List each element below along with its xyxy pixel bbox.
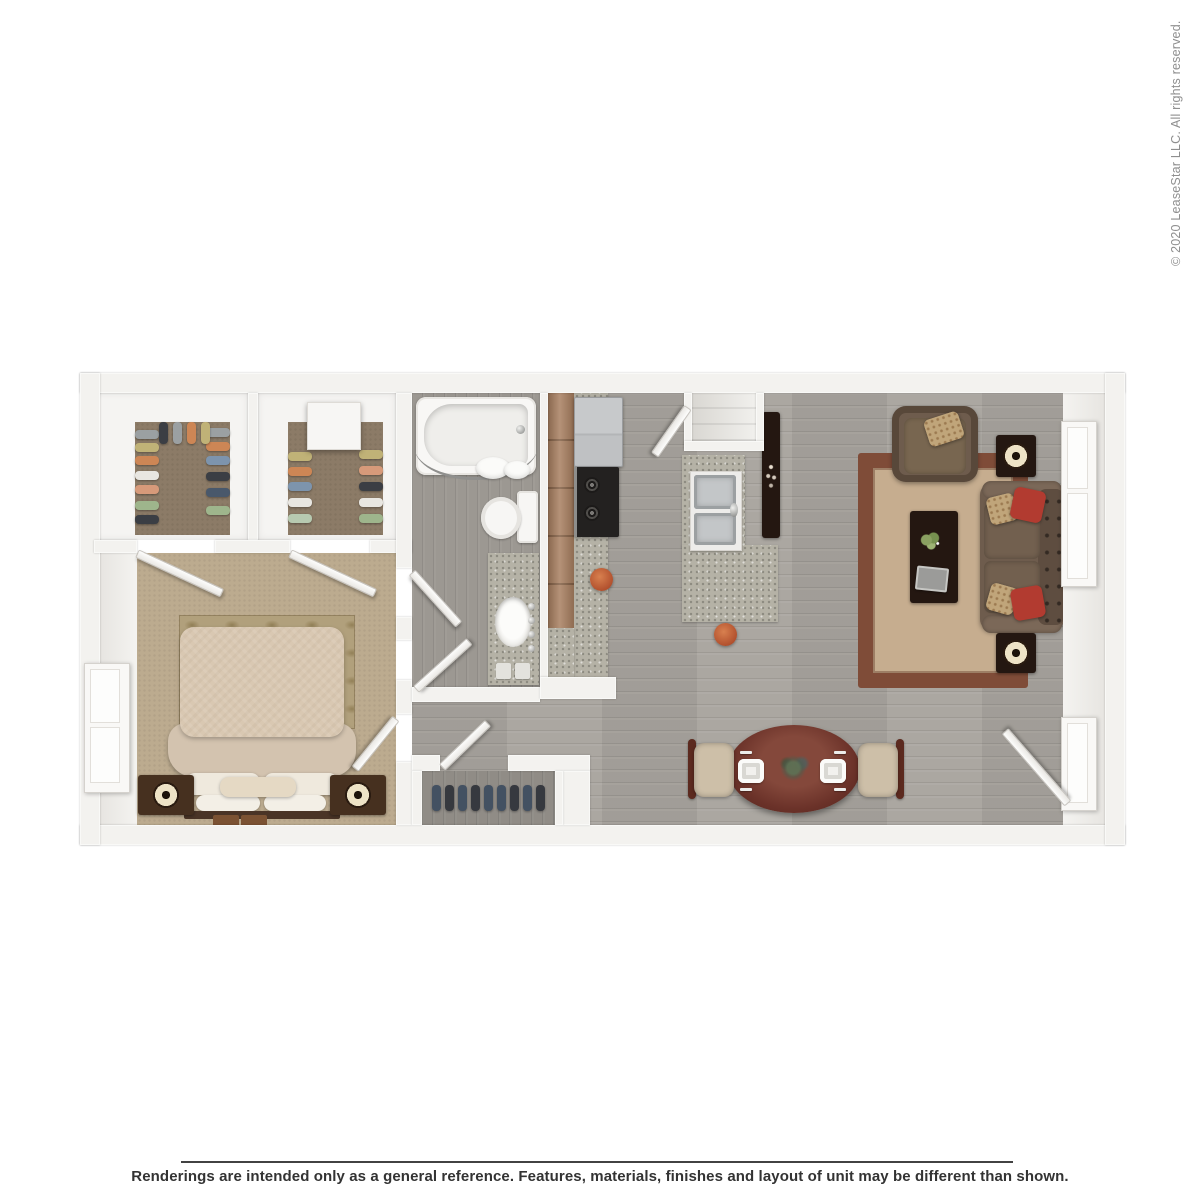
clothes-item — [484, 785, 493, 811]
tub-faucet-icon — [516, 425, 525, 434]
clothes-item — [288, 514, 312, 523]
bed-pillow — [196, 795, 260, 811]
clothes-item — [359, 450, 383, 459]
clothes-item — [206, 456, 230, 465]
clothes-item — [288, 498, 312, 507]
table-lamp-icon — [1001, 638, 1031, 668]
clothes-item — [173, 422, 182, 444]
window-pane — [90, 669, 120, 723]
faucet-knob-icon — [528, 645, 535, 652]
floor-plan — [80, 373, 1125, 845]
wall-hall — [508, 755, 590, 771]
sink-basin — [694, 475, 736, 509]
cutlery-icon — [740, 788, 752, 791]
divider-line — [181, 1161, 1013, 1163]
faucet-knob-icon — [528, 603, 535, 610]
bed — [180, 627, 344, 737]
clothes-item — [135, 443, 159, 452]
clothes-item — [359, 482, 383, 491]
wall-coat-closet — [555, 771, 563, 825]
coat-closet-floor — [422, 771, 555, 825]
faucet-knob-icon — [528, 617, 535, 624]
bar-stool — [590, 568, 613, 591]
clothes-item — [510, 785, 519, 811]
clothes-item — [458, 785, 467, 811]
plant-icon — [918, 531, 942, 551]
clothes-item — [359, 498, 383, 507]
red-pillow — [1009, 584, 1046, 621]
screenshot: © 2020 LeaseStar LLC. All rights reserve… — [0, 0, 1200, 1200]
kitchen-cabinets — [548, 393, 574, 628]
clothes-item — [206, 506, 230, 515]
decor-icon — [764, 461, 778, 491]
clothes-item — [135, 471, 159, 480]
toilet — [481, 497, 521, 539]
clothes-item — [206, 472, 230, 481]
pantry-interior — [692, 393, 756, 441]
clothes-item — [288, 467, 312, 476]
wall-counter-end — [540, 677, 616, 699]
window-pane — [1067, 493, 1088, 579]
clothes-item — [288, 482, 312, 491]
kitchen-counter-end — [548, 628, 574, 677]
table-lamp-icon — [151, 780, 181, 810]
clothes-item — [135, 515, 159, 524]
wall-top — [80, 373, 1125, 393]
burner-icon — [584, 477, 600, 493]
wall-bath-bottom — [412, 687, 540, 702]
clothes-item — [135, 501, 159, 510]
wall-bedroom-bath — [396, 393, 412, 568]
clothes-item — [359, 466, 383, 475]
place-setting — [738, 759, 764, 783]
wall-bedroom-bath — [396, 680, 412, 714]
wall-closet-divider — [248, 393, 258, 540]
vanity-sink — [495, 597, 531, 647]
towel — [496, 663, 511, 679]
clothes-item — [536, 785, 545, 811]
wall-coat-closet — [412, 771, 422, 825]
disclaimer-text: Renderings are intended only as a genera… — [0, 1168, 1200, 1185]
clothes-item — [187, 422, 196, 444]
wall-bottom — [80, 825, 1125, 845]
clothes-item — [288, 452, 312, 461]
clothes-item — [359, 514, 383, 523]
sink-basin — [694, 513, 736, 545]
cutlery-icon — [834, 788, 846, 791]
wall-closet-front — [215, 540, 290, 553]
centerpiece-icon — [778, 753, 812, 783]
window-pane — [1067, 427, 1088, 489]
clothes-item — [497, 785, 506, 811]
bed-pillow — [220, 777, 296, 797]
clothes-item — [206, 442, 230, 451]
bar-stool — [714, 623, 737, 646]
cutlery-icon — [740, 751, 752, 754]
tablet — [915, 565, 949, 592]
clothes-item — [471, 785, 480, 811]
burner-icon — [584, 505, 600, 521]
clothes-item — [201, 422, 210, 444]
bed-pillow — [264, 795, 326, 811]
window-pane — [90, 727, 120, 783]
closet-1-carpet — [135, 422, 230, 535]
faucet-icon — [730, 503, 738, 517]
storage-box — [307, 402, 361, 450]
island-counter-foot — [682, 545, 778, 622]
wall-right — [1105, 373, 1125, 845]
cutlery-icon — [834, 751, 846, 754]
dining-chair — [858, 743, 898, 797]
window-pane — [1067, 723, 1088, 803]
clothes-item — [432, 785, 441, 811]
place-setting — [820, 759, 846, 783]
table-lamp-icon — [1001, 441, 1031, 471]
faucet-knob-icon — [528, 631, 535, 638]
wall-hall — [412, 755, 440, 771]
copyright-text: © 2020 LeaseStar LLC. All rights reserve… — [1169, 18, 1185, 266]
shower-curtain — [504, 461, 530, 479]
clothes-item — [135, 456, 159, 465]
clothes-item — [159, 422, 168, 444]
wall-entry-block — [563, 771, 590, 825]
table-lamp-icon — [343, 780, 373, 810]
wall-bedroom-bath — [396, 762, 412, 825]
wall-pantry-front — [684, 441, 764, 451]
refrigerator — [574, 397, 623, 467]
clothes-item — [523, 785, 532, 811]
wall-bath-kitchen — [540, 393, 548, 687]
dining-chair — [694, 743, 734, 797]
red-pillow — [1009, 486, 1047, 524]
clothes-item — [206, 488, 230, 497]
towel — [515, 663, 530, 679]
wall-closet-front — [94, 540, 137, 553]
clothes-item — [135, 485, 159, 494]
clothes-item — [445, 785, 454, 811]
clothes-item — [135, 430, 159, 439]
wall-bedroom-bath — [396, 617, 412, 640]
